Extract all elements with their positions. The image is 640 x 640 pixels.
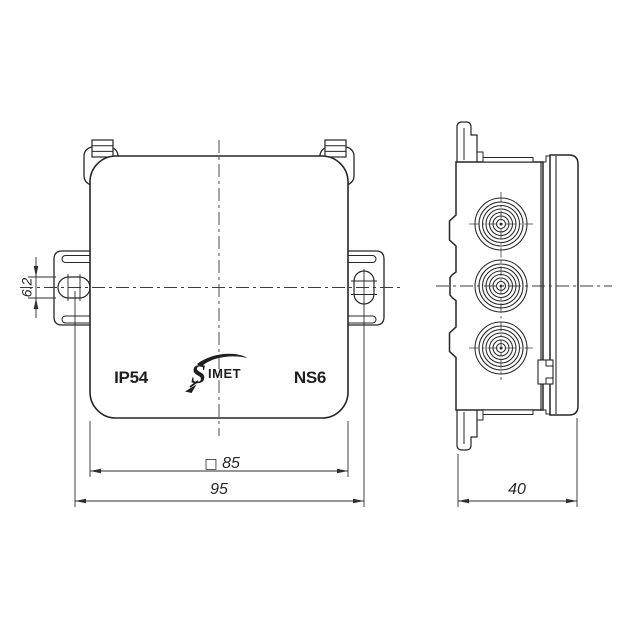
svg-text:40: 40 xyxy=(508,481,526,498)
junction-box-technical-drawing: IP54 NS6 S IMET 6.2 □ 85 95 xyxy=(0,0,640,640)
square-symbol: □ xyxy=(204,456,217,472)
box-lid-side xyxy=(550,155,578,415)
clip-tab-left xyxy=(92,140,113,157)
ip-rating-label: IP54 xyxy=(114,368,149,387)
lid-latch xyxy=(538,360,553,384)
svg-text:6.2: 6.2 xyxy=(19,278,35,298)
svg-text:95: 95 xyxy=(210,481,228,498)
svg-text:85: 85 xyxy=(222,455,240,472)
bottom-lip xyxy=(483,410,533,415)
clip-tab-right xyxy=(325,140,346,157)
top-lip xyxy=(483,158,533,163)
drawing-page: IP54 NS6 S IMET 6.2 □ 85 95 xyxy=(0,0,640,640)
model-label: NS6 xyxy=(294,368,326,387)
svg-text:IMET: IMET xyxy=(208,366,241,381)
